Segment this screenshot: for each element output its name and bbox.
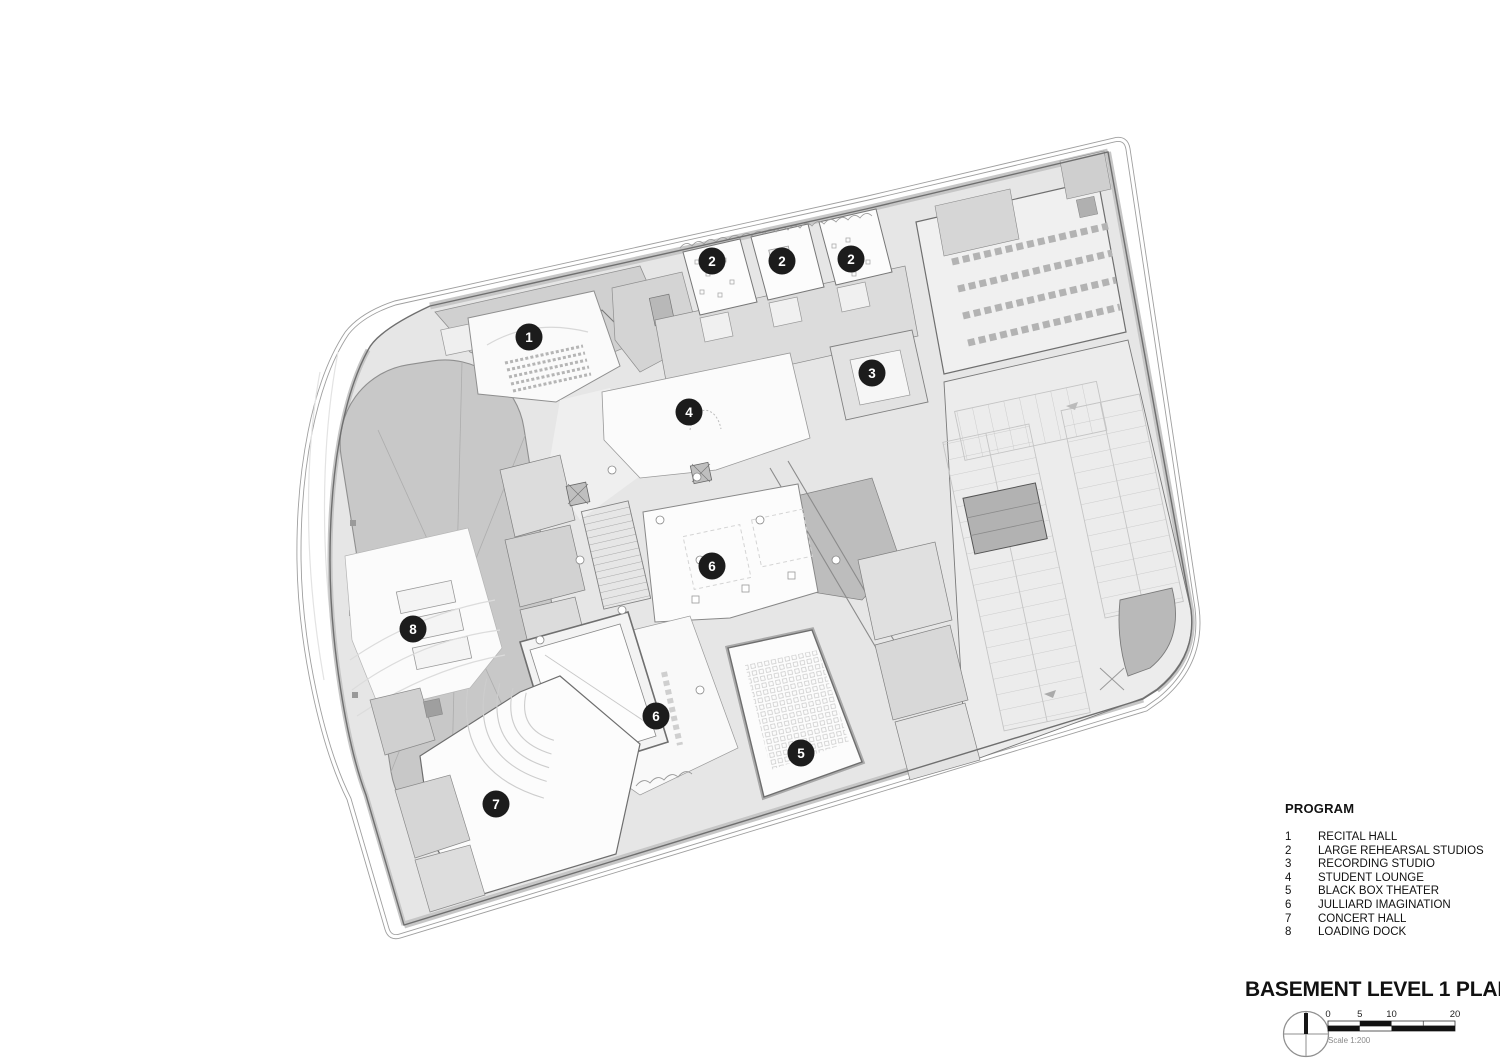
svg-text:8: 8 bbox=[409, 622, 417, 637]
drawing-sheet: 1 2 2 2 3 4 6 8 6 5 7 PROGRAM 1RECITAL H… bbox=[0, 0, 1500, 1061]
plan-marker: 1 bbox=[516, 324, 543, 351]
plan-marker: 5 bbox=[788, 740, 815, 767]
svg-text:1: 1 bbox=[525, 330, 533, 345]
plan-marker: 8 bbox=[400, 616, 427, 643]
legend-item-number: 5 bbox=[1285, 885, 1318, 899]
legend-item-label: RECORDING STUDIO bbox=[1318, 858, 1435, 872]
legend-item-number: 2 bbox=[1285, 845, 1318, 859]
scale-label: 10 bbox=[1386, 1009, 1397, 1020]
svg-text:2: 2 bbox=[847, 252, 855, 267]
plan-marker: 6 bbox=[699, 553, 726, 580]
legend-item-number: 3 bbox=[1285, 858, 1318, 872]
legend-item-number: 6 bbox=[1285, 899, 1318, 913]
legend-item: 3RECORDING STUDIO bbox=[1285, 858, 1500, 872]
legend-item-label: BLACK BOX THEATER bbox=[1318, 885, 1439, 899]
legend-item: 6JULLIARD IMAGINATION bbox=[1285, 899, 1500, 913]
legend-item: 1RECITAL HALL bbox=[1285, 831, 1500, 845]
legend-item: 8LOADING DOCK bbox=[1285, 926, 1500, 940]
plan-marker: 4 bbox=[676, 399, 703, 426]
plan-marker: 6 bbox=[643, 703, 670, 730]
svg-text:2: 2 bbox=[708, 254, 716, 269]
legend-item-number: 1 bbox=[1285, 831, 1318, 845]
legend-item: 2LARGE REHEARSAL STUDIOS bbox=[1285, 845, 1500, 859]
plan-marker: 3 bbox=[859, 360, 886, 387]
plan-marker: 2 bbox=[838, 246, 865, 273]
legend-item: 7CONCERT HALL bbox=[1285, 913, 1500, 927]
svg-text:6: 6 bbox=[652, 709, 660, 724]
legend-item-number: 7 bbox=[1285, 913, 1318, 927]
legend-item: 5BLACK BOX THEATER bbox=[1285, 885, 1500, 899]
legend-item-number: 8 bbox=[1285, 926, 1318, 940]
legend-item-label: STUDENT LOUNGE bbox=[1318, 872, 1424, 886]
floor-plan-drawing: 1 2 2 2 3 4 6 8 6 5 7 bbox=[0, 0, 1500, 1061]
legend-item-label: JULLIARD IMAGINATION bbox=[1318, 899, 1451, 913]
legend-item-number: 4 bbox=[1285, 872, 1318, 886]
scale-label: 5 bbox=[1357, 1009, 1362, 1020]
svg-text:2: 2 bbox=[778, 254, 786, 269]
plan-marker: 2 bbox=[769, 248, 796, 275]
scale-label: 0 bbox=[1325, 1009, 1330, 1020]
legend-title: PROGRAM bbox=[1285, 801, 1500, 816]
legend-item-label: LOADING DOCK bbox=[1318, 926, 1406, 940]
svg-text:5: 5 bbox=[797, 746, 805, 761]
scale-caption: Scale 1:200 bbox=[1328, 1036, 1371, 1045]
svg-text:6: 6 bbox=[708, 559, 716, 574]
svg-text:7: 7 bbox=[492, 797, 500, 812]
plan-marker: 2 bbox=[699, 248, 726, 275]
legend-item-label: LARGE REHEARSAL STUDIOS bbox=[1318, 845, 1484, 859]
legend-item-label: CONCERT HALL bbox=[1318, 913, 1406, 927]
legend-item-label: RECITAL HALL bbox=[1318, 831, 1397, 845]
scale-label: 20 bbox=[1450, 1009, 1461, 1020]
scale-bar: 0 5 10 20 Scale 1:200 bbox=[1322, 1005, 1472, 1053]
plan-marker: 7 bbox=[483, 791, 510, 818]
legend-item: 4STUDENT LOUNGE bbox=[1285, 872, 1500, 886]
svg-text:3: 3 bbox=[868, 366, 876, 381]
svg-text:4: 4 bbox=[685, 405, 693, 420]
program-legend: PROGRAM 1RECITAL HALL 2LARGE REHEARSAL S… bbox=[1285, 801, 1500, 940]
sheet-title: BASEMENT LEVEL 1 PLAN bbox=[1245, 978, 1500, 1002]
